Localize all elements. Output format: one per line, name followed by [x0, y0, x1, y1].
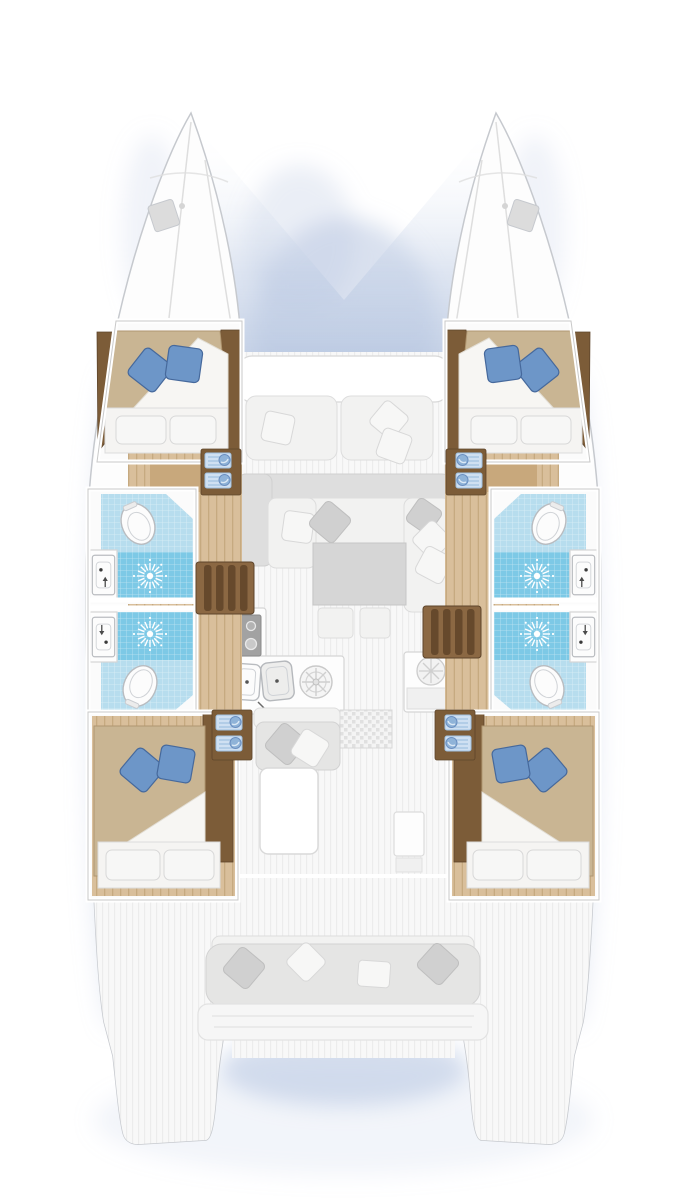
white-pillow [281, 510, 315, 544]
white-pillow [357, 960, 391, 988]
salon-table [313, 543, 406, 605]
catamaran-floorplan [0, 0, 687, 1200]
salon-ottoman [360, 608, 390, 638]
catamaran-floorplan-page [0, 0, 687, 1200]
foredeck [238, 356, 449, 465]
starboard-companionway-stairs [423, 606, 481, 658]
starboard-entry-step [394, 812, 424, 856]
cockpit-table [260, 768, 318, 854]
round-hob [300, 666, 332, 698]
salon-ottoman [318, 608, 353, 638]
white-pillow [260, 410, 296, 446]
cockpit-grating [340, 710, 392, 748]
port-companionway-stairs [196, 562, 254, 614]
galley-sink [260, 660, 295, 701]
aft-bench [206, 936, 480, 1006]
transom-edge [198, 1004, 488, 1040]
